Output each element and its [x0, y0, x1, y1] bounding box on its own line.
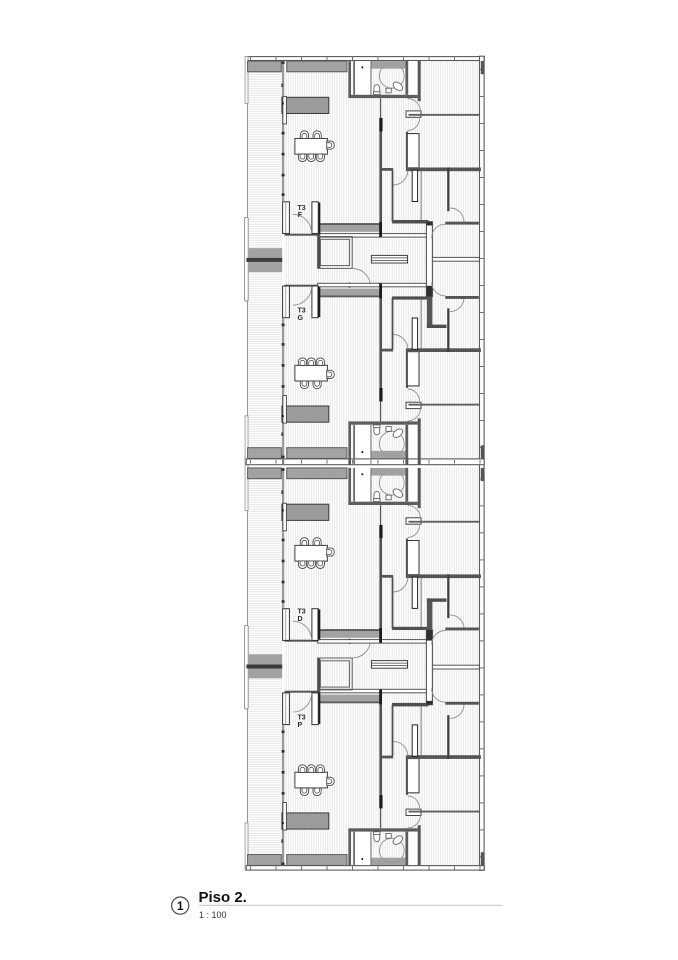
svg-text:F: F: [298, 212, 303, 219]
svg-text:T3: T3: [298, 609, 306, 616]
svg-text:1: 1: [177, 899, 184, 913]
svg-text:1 : 100: 1 : 100: [199, 910, 227, 920]
svg-text:Piso 2.: Piso 2.: [199, 889, 247, 906]
svg-text:G: G: [298, 315, 304, 322]
svg-text:T3: T3: [298, 205, 306, 212]
svg-text:T3: T3: [298, 714, 306, 721]
svg-text:P: P: [298, 722, 303, 729]
svg-text:D: D: [298, 616, 303, 623]
svg-text:T3: T3: [298, 307, 306, 314]
